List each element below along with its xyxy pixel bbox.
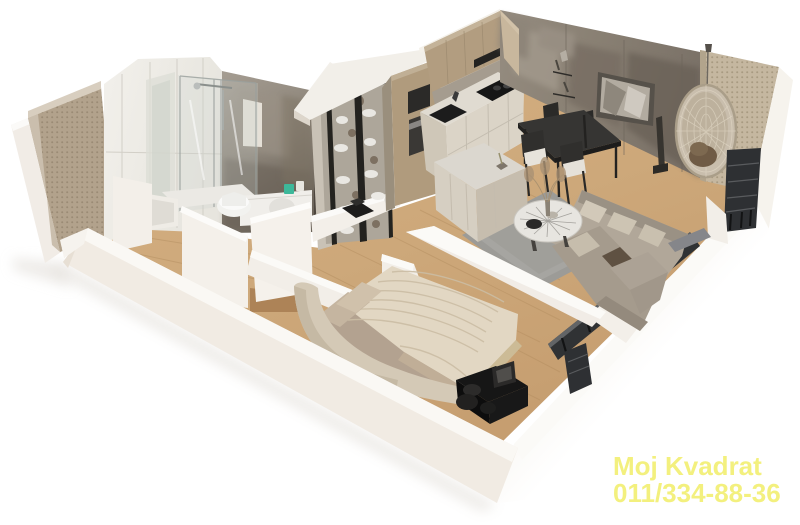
svg-text:011/334-88-36: 011/334-88-36	[613, 478, 781, 508]
svg-text:Moj Kvadrat: Moj Kvadrat	[613, 451, 762, 481]
